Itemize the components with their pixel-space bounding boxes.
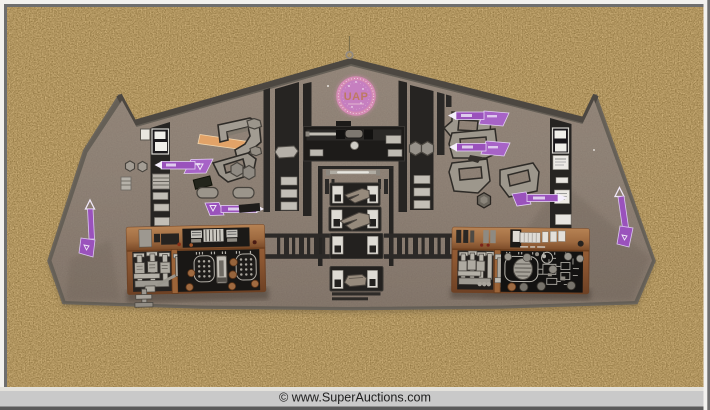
svg-text:UAP: UAP <box>344 91 368 103</box>
svg-text:© www.SuperAuctions.com: © www.SuperAuctions.com <box>279 391 431 405</box>
